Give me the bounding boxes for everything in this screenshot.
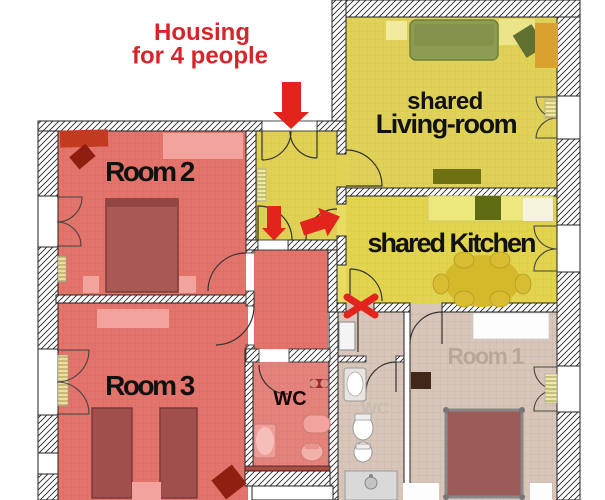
- svg-text:Room 3: Room 3: [105, 370, 195, 401]
- svg-text:WC: WC: [273, 388, 306, 410]
- svg-text:Room 1: Room 1: [447, 343, 524, 369]
- svg-text:shared Kitchen: shared Kitchen: [367, 228, 535, 258]
- svg-text:for 4 people: for 4 people: [132, 43, 268, 70]
- svg-text:WC: WC: [361, 399, 389, 418]
- svg-text:Room 2: Room 2: [105, 156, 195, 187]
- svg-text:Living-room: Living-room: [376, 109, 517, 139]
